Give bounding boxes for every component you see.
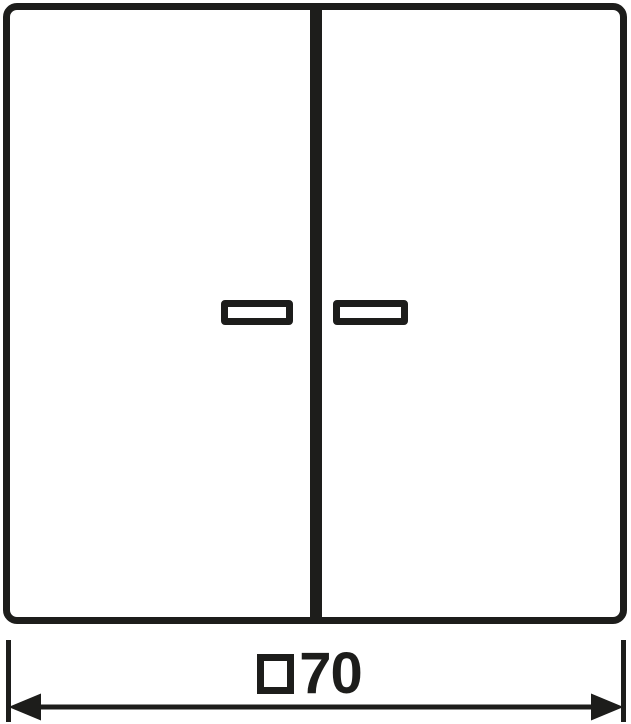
right-arrowhead-icon — [591, 694, 624, 721]
left-indicator-window — [221, 300, 293, 325]
width-dimension-arrow — [0, 630, 631, 724]
left-arrowhead-icon — [9, 694, 42, 721]
technical-drawing-canvas: 70 — [0, 0, 631, 724]
right-indicator-window — [333, 300, 408, 325]
rocker-divider-line — [310, 7, 322, 620]
